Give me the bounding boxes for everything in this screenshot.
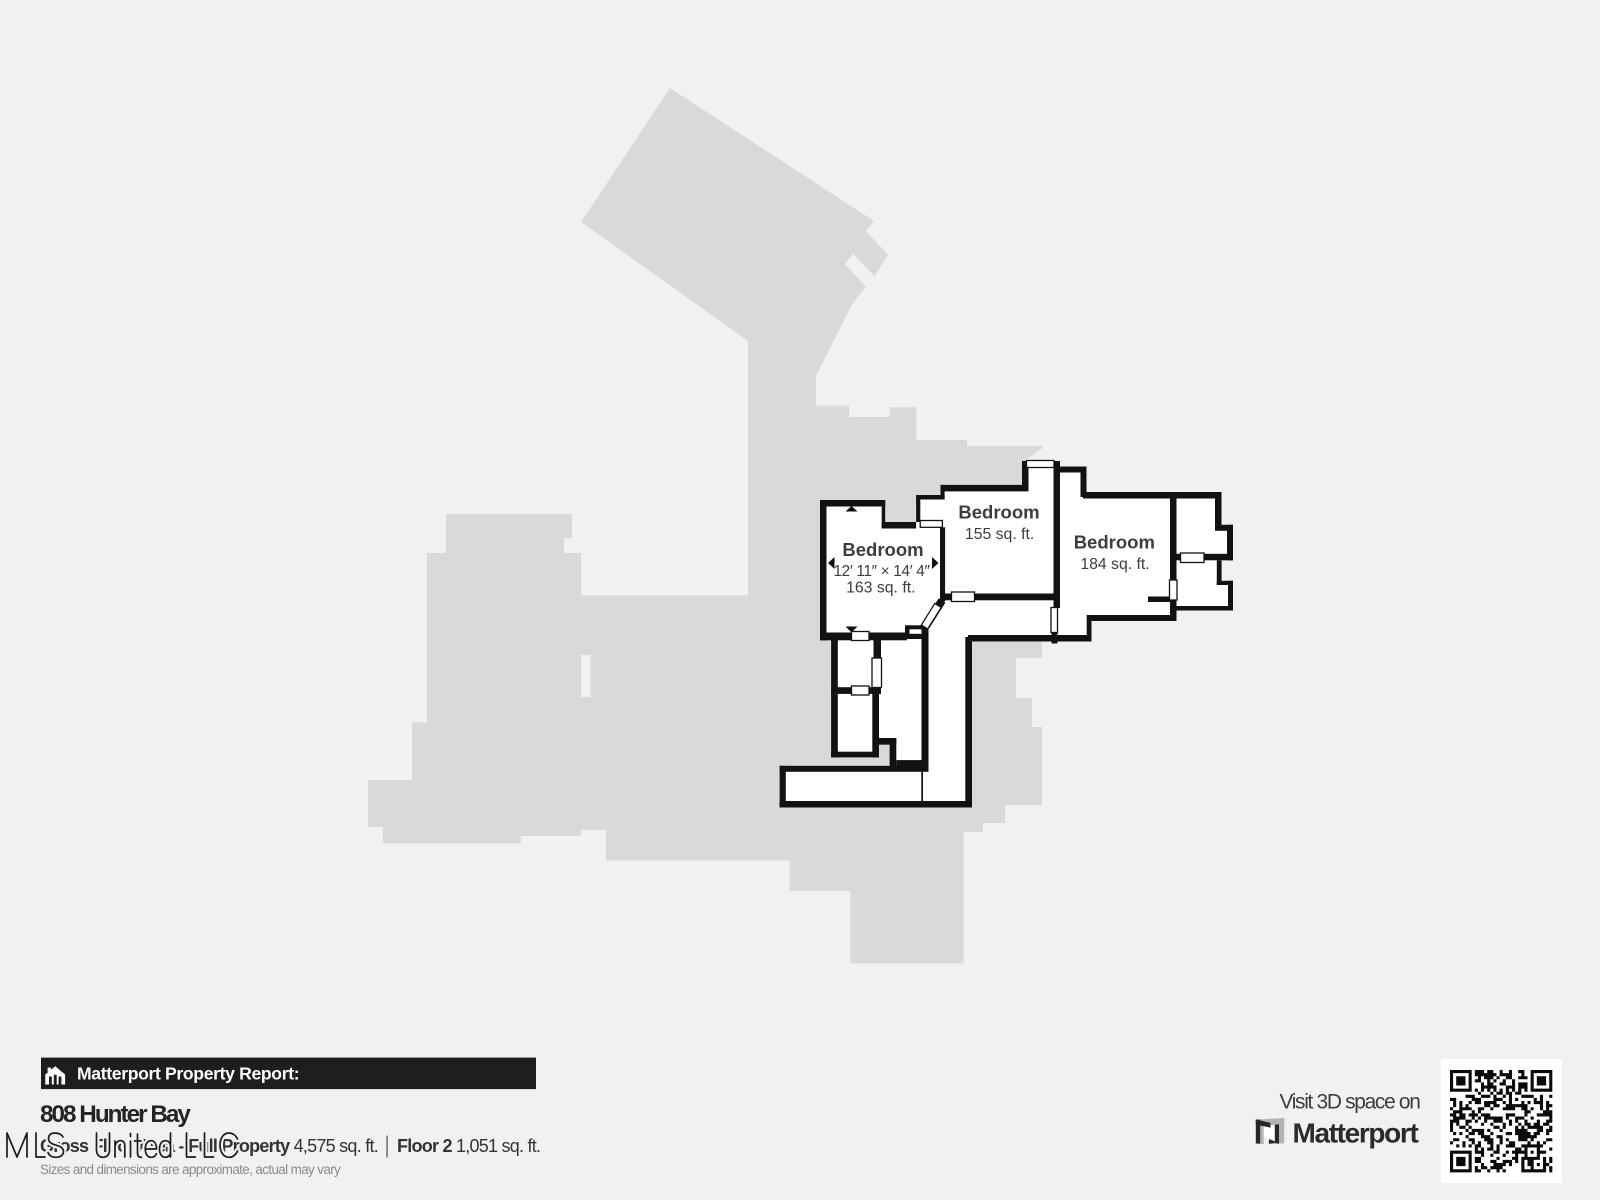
- svg-text:Bedroom: Bedroom: [1074, 532, 1155, 553]
- svg-text:Bedroom: Bedroom: [958, 502, 1039, 523]
- svg-text:184 sq. ft.: 184 sq. ft.: [1080, 556, 1149, 573]
- svg-text:Bedroom: Bedroom: [842, 539, 923, 560]
- svg-text:12′ 11″ × 14′ 4″: 12′ 11″ × 14′ 4″: [833, 563, 930, 580]
- svg-text:808 Hunter Bay: 808 Hunter Bay: [40, 1101, 191, 1128]
- svg-text:Sizes and dimensions are appro: Sizes and dimensions are approximate, ac…: [40, 1162, 341, 1177]
- svg-text:Visit 3D space on: Visit 3D space on: [1279, 1090, 1420, 1113]
- svg-text:Matterport Property Report:: Matterport Property Report:: [77, 1064, 299, 1084]
- svg-text:163 sq. ft.: 163 sq. ft.: [846, 580, 915, 597]
- svg-text:Matterport: Matterport: [1293, 1118, 1419, 1149]
- svg-text:155 sq. ft.: 155 sq. ft.: [965, 526, 1034, 543]
